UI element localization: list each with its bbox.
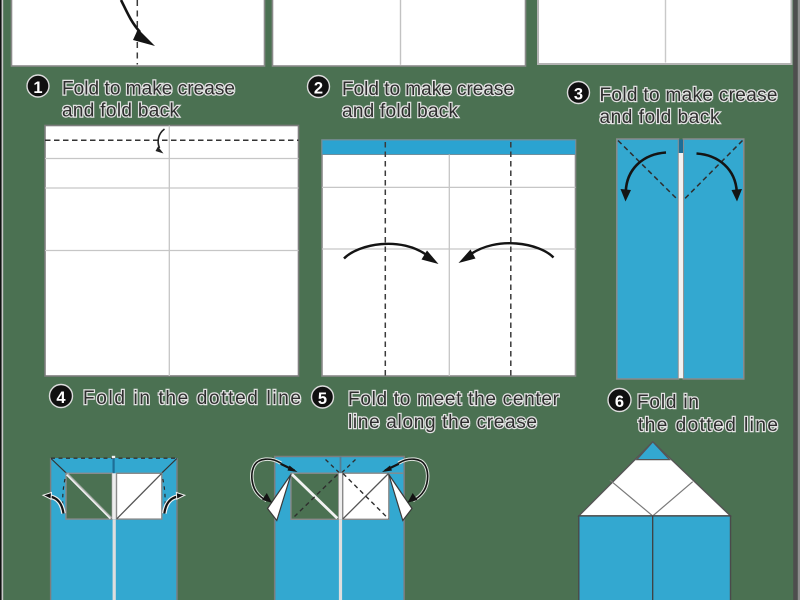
svg-text:5: 5 xyxy=(318,390,327,408)
svg-text:3: 3 xyxy=(574,86,583,104)
svg-text:Fold to make crease: Fold to make crease xyxy=(600,85,778,106)
svg-text:2: 2 xyxy=(314,80,323,98)
svg-text:1: 1 xyxy=(33,79,42,97)
svg-text:the dotted line: the dotted line xyxy=(638,415,778,436)
svg-text:Fold to make crease: Fold to make crease xyxy=(342,79,514,100)
svg-text:Fold in the dotted line: Fold in the dotted line xyxy=(83,388,301,409)
svg-text:and fold back: and fold back xyxy=(342,101,459,122)
svg-text:line along the crease: line along the crease xyxy=(348,412,537,433)
svg-text:and fold back: and fold back xyxy=(62,101,180,122)
svg-text:and fold back: and fold back xyxy=(600,107,721,128)
svg-text:6: 6 xyxy=(615,393,624,411)
svg-text:4: 4 xyxy=(56,389,66,407)
svg-text:Fold to make crease: Fold to make crease xyxy=(62,79,235,100)
svg-text:Fold to meet the center: Fold to meet the center xyxy=(348,389,560,410)
svg-text:Fold in: Fold in xyxy=(637,392,699,413)
